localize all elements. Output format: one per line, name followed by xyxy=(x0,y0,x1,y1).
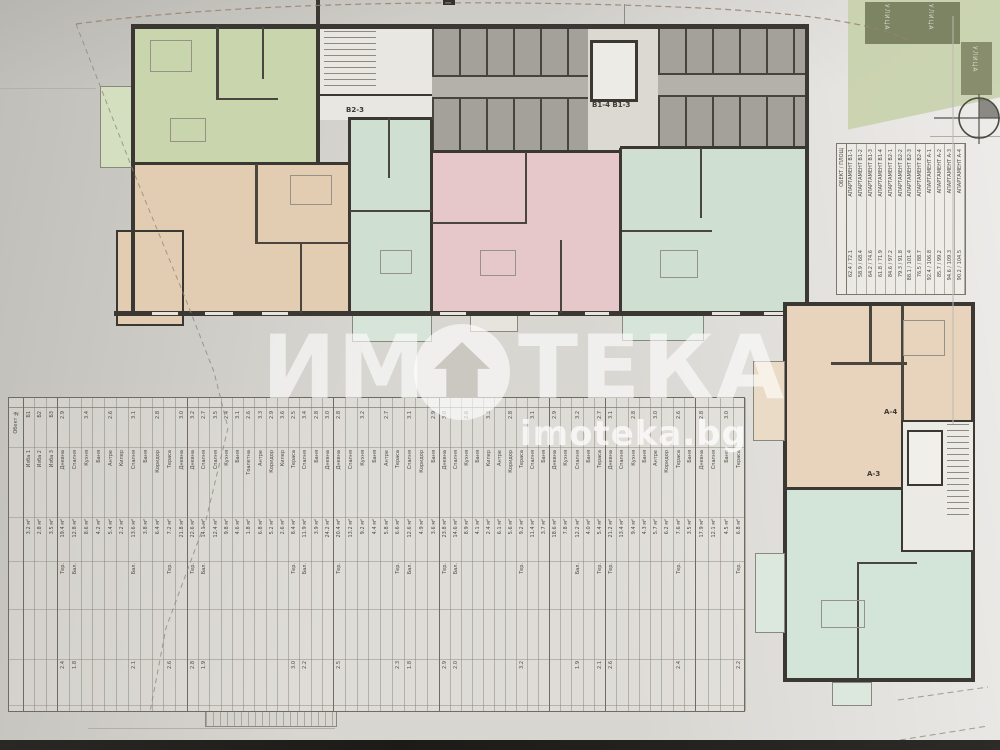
interior-wall xyxy=(869,306,872,364)
furniture xyxy=(170,118,206,142)
street-label: УЛИЦА xyxy=(927,4,934,30)
table-column: 3.5Спалня12.4 м² xyxy=(210,398,221,711)
table-cell-text: 13.4 м² xyxy=(619,519,625,538)
unit-label-a4: А-4 xyxy=(884,408,897,416)
interior-wall xyxy=(560,240,562,313)
table-cell-text: Тер. xyxy=(736,563,742,574)
table-cell-text: Спалня xyxy=(213,450,219,469)
table-cell-text: Спалня xyxy=(131,450,137,469)
legend-column: АПАРТАМЕНТ А-192.4 / 106.8 xyxy=(926,144,936,294)
table-cell-text: 22.6 м² xyxy=(190,519,196,538)
table-cell-text: 3.8 м² xyxy=(143,519,149,534)
table-cell-text: Тер. xyxy=(291,563,297,574)
table-cell-text: Спалня xyxy=(72,450,78,469)
table-cell-text: 2.1 xyxy=(131,661,137,669)
table-cell-text: 2.1 xyxy=(597,661,603,669)
table-cell-text: 2.4 xyxy=(224,411,230,419)
table-cell-text: 3.5 м² xyxy=(49,519,55,534)
table-cell-text: 1.8 м² xyxy=(246,519,252,534)
legend-apartment-area: 76.5 / 88.7 xyxy=(917,250,923,277)
table-cell-text: 2.2 м² xyxy=(119,519,125,534)
table-cell-text: 6.6 м² xyxy=(395,519,401,534)
table-cell-text: 7.8 м² xyxy=(563,519,569,534)
elevator-shaft xyxy=(590,40,638,102)
table-cell-text: Кухня xyxy=(224,450,230,466)
table-cell-text: 12.1 м² xyxy=(711,519,717,538)
watermark-text-right: ТЕКА xyxy=(518,318,786,418)
window xyxy=(530,312,558,315)
interior-wall xyxy=(525,152,527,222)
table-column: Баня3.8 м² xyxy=(141,398,153,711)
table-cell-text: 5.6 м² xyxy=(508,519,514,534)
unit-label-b1-4-b1-3: В1-4 В1-3 xyxy=(592,101,630,109)
table-cell-text: 5.7 м² xyxy=(653,519,659,534)
table-cell-text: 20.4 м² xyxy=(336,519,342,538)
watermark-house-logo xyxy=(414,324,510,420)
wall-mintmid-top xyxy=(348,117,432,120)
window xyxy=(712,312,740,315)
table-cell-text: 3.5 xyxy=(213,411,219,419)
dimension-line xyxy=(624,4,625,24)
watermark-text-left: ИМ xyxy=(262,318,427,418)
unit-label-b2-3: В2-3 xyxy=(346,106,364,114)
table-cell-text: Спалня xyxy=(201,450,207,469)
table-cell-text: 1.8 xyxy=(72,661,78,669)
legend-column: АПАРТАМЕНТ В1-162.4 / 72.1 xyxy=(847,144,857,294)
table-cell-text: 2.9 xyxy=(60,411,66,419)
table-cell-text: 3.0 xyxy=(179,411,185,419)
window xyxy=(152,312,178,315)
table-column: 3.1Спалня13.6 м²Бал.2.1 xyxy=(129,398,141,711)
top-tick-mark xyxy=(443,0,455,5)
table-cell-text: 2.4 xyxy=(60,661,66,669)
table-cell-text: Тер. xyxy=(676,563,682,574)
legend-apartment-name: АПАРТАМЕНТ А-3 xyxy=(947,149,953,193)
table-cell-text: 5.4 м² xyxy=(597,519,603,534)
table-cell-text: 2.8 xyxy=(190,661,196,669)
legend-column: АПАРТАМЕНТ А-490.2 / 104.5 xyxy=(955,144,965,294)
table-cell-text: 4.3 м² xyxy=(642,519,648,534)
furniture xyxy=(290,175,332,205)
table-cell-text: Тер. xyxy=(597,563,603,574)
table-cell-text: 4.2 м² xyxy=(96,519,102,534)
interior-wall xyxy=(622,230,712,232)
storage-cells-row xyxy=(658,95,807,146)
legend-apartment-area: 79.3 / 91.8 xyxy=(898,250,904,277)
watermark-url: imoteka.bg xyxy=(520,414,747,454)
wall-tan-mintmid xyxy=(348,117,351,314)
table-cell-text: 6.4 м² xyxy=(155,519,161,534)
table-cell-text: Б1 xyxy=(26,411,32,418)
house-icon xyxy=(434,342,490,398)
storage-cells-row xyxy=(432,97,588,150)
legend-column: АПАРТАМЕНТ А-394.6 / 109.3 xyxy=(945,144,955,294)
table-cell-text: 2.6 м² xyxy=(280,519,286,534)
table-cell-text: 2.8 м² xyxy=(37,519,43,534)
legend-column: АПАРТАМЕНТ В2-184.6 / 97.2 xyxy=(886,144,896,294)
table-cell-text: Баня xyxy=(143,450,149,463)
table-cell-text: Тоалетна xyxy=(246,450,252,475)
faint-line xyxy=(88,728,335,729)
table-cell-text: 6.8 м² xyxy=(258,519,264,534)
table-cell-text: Тер. xyxy=(608,563,614,574)
table-cell-text: 3.0 xyxy=(291,661,297,669)
table-column: 2.4Кухня9.8 м² xyxy=(222,398,233,711)
legend-column: АПАРТАМЕНТ В1-461.8 / 71.9 xyxy=(876,144,886,294)
table-cell-text: Бал. xyxy=(201,563,207,574)
window xyxy=(205,312,233,315)
table-cell-text: 4.4 м² xyxy=(372,519,378,534)
legend-apartment-name: АПАРТАМЕНТ В1-2 xyxy=(858,149,864,197)
interior-wall xyxy=(255,164,258,244)
unit-label-a3: А-3 xyxy=(867,470,880,478)
table-cell-text: Изба 2 xyxy=(37,450,43,467)
window xyxy=(440,312,466,315)
table-column: Б2Изба 22.8 м² xyxy=(35,398,46,711)
legend-apartment-area: 84.6 / 97.2 xyxy=(888,250,894,277)
table-cell-text: 2.0 xyxy=(453,661,459,669)
table-cell-text: 13.2 м² xyxy=(348,519,354,538)
compass-icon xyxy=(934,92,1000,146)
table-cell-text: 19.4 м² xyxy=(60,519,66,538)
interior-wall xyxy=(255,242,350,244)
table-cell-text: Кухня xyxy=(84,450,90,466)
table-cell-text: Дневна xyxy=(179,450,185,470)
table-cell-text: 5.8 м² xyxy=(384,519,390,534)
table-cell-text: 2.7 xyxy=(201,411,207,419)
table-cell-text: 1.9 xyxy=(201,661,207,669)
table-cell-text: Б3 xyxy=(49,411,55,418)
furniture xyxy=(380,250,412,274)
table-cell-text: Баня xyxy=(96,450,102,463)
table-cell-text: 2.4 xyxy=(676,661,682,669)
table-cell-text: 8.6 м² xyxy=(84,519,90,534)
table-cell-text: 17.9 м² xyxy=(699,519,705,538)
table-cell-text: 7.2 м² xyxy=(167,519,173,534)
legend-apartment-area: 88.1 / 101.4 xyxy=(907,250,913,280)
table-cell-text: 9.8 м² xyxy=(224,519,230,534)
legend-apartment-name: АПАРТАМЕНТ В2-2 xyxy=(898,149,904,197)
table-cell-text: 2.5 xyxy=(336,661,342,669)
legend-apartment-area: 58.9 / 68.4 xyxy=(858,250,864,277)
interior-wall xyxy=(700,148,702,218)
table-cell-text: 14.6 м² xyxy=(453,519,459,538)
table-cell-text: 11.9 м² xyxy=(302,519,308,538)
street-block-1: УЛИЦА УЛИЦА xyxy=(865,2,960,44)
interior-wall xyxy=(857,562,917,564)
balcony-a3 xyxy=(755,553,785,633)
table-column: 2.6Тоалетна1.8 м² xyxy=(244,398,255,711)
table-cell-text: 1.9 xyxy=(575,661,581,669)
outer-wall-top xyxy=(131,24,809,29)
table-cell-text: Бал. xyxy=(453,563,459,574)
table-cell-text: 3.7 м² xyxy=(541,519,547,534)
table-cell-text: Тер. xyxy=(336,563,342,574)
storage-block-a xyxy=(432,25,588,150)
table-cell-text: 4.6 м² xyxy=(235,519,241,534)
furniture xyxy=(150,40,192,72)
table-cell-text: 12.2 м² xyxy=(575,519,581,538)
legend-column: АПАРТАМЕНТ В2-388.1 / 101.4 xyxy=(906,144,916,294)
table-cell-text: Бал. xyxy=(302,563,308,574)
table-cell-text: 7.6 м² xyxy=(676,519,682,534)
table-cell-text: Тер. xyxy=(167,563,173,574)
table-cell-text: 12.6 м² xyxy=(407,519,413,538)
table-cell-text: 8.4 м² xyxy=(291,519,297,534)
table-cell-text: 2.6 xyxy=(167,661,173,669)
furniture xyxy=(660,250,698,278)
table-cell-text: 9.4 м² xyxy=(631,519,637,534)
table-cell-text: 3.2 xyxy=(519,661,525,669)
table-cell-text: 12.4 м² xyxy=(213,519,219,538)
area-table-extension xyxy=(205,712,337,727)
table-cell-text: 5.2 м² xyxy=(269,519,275,534)
table-cell-text: Б2 xyxy=(37,411,43,418)
legend-apartment-name: АПАРТАМЕНТ А-4 xyxy=(957,149,963,193)
stair-treads xyxy=(324,31,376,91)
table-cell-text: Бал. xyxy=(407,563,413,574)
table-cell-text: Бал. xyxy=(575,563,581,574)
table-cell-text: Дневна xyxy=(60,450,66,470)
table-cell-text: 2.3 xyxy=(395,661,401,669)
table-cell-text: 24.2 м² xyxy=(325,519,331,538)
table-cell-text: Дневна xyxy=(190,450,196,470)
table-cell-text: 9.2 м² xyxy=(519,519,525,534)
table-cell-text: 21.2 м² xyxy=(608,519,614,538)
table-cell-text: 3.1 xyxy=(235,411,241,419)
table-column: 2.6Антре5.4 м² xyxy=(105,398,117,711)
table-cell-text: 4.9 м² xyxy=(419,519,425,534)
table-cell-text: Изба 1 xyxy=(26,450,32,467)
table-cell-text: 2.6 xyxy=(608,661,614,669)
legend-column: АПАРТАМЕНТ В2-279.3 / 91.8 xyxy=(896,144,906,294)
elevator-shaft-a xyxy=(907,430,943,486)
table-cell-text: 6.1 м² xyxy=(497,519,503,534)
interior-wall xyxy=(432,222,527,224)
street-label: УЛИЦА xyxy=(883,4,890,30)
furniture xyxy=(480,250,516,276)
table-column: 2.7Спалня14.1 м²Бал.1.9 xyxy=(199,398,210,711)
legend-column: АПАРТАМЕНТ А-285.7 / 99.2 xyxy=(935,144,945,294)
window xyxy=(585,312,609,315)
table-cell-text: 3.6 м² xyxy=(431,519,437,534)
outer-wall-right xyxy=(805,24,809,316)
furniture xyxy=(903,320,945,356)
table-cell-text: 4.0 м² xyxy=(586,519,592,534)
legend-column: АПАРТАМЕНТ В1-364.2 / 74.6 xyxy=(867,144,877,294)
terrace-a3 xyxy=(832,682,872,706)
table-group: Б1Изба 13.2 м²Б2Изба 22.8 м²Б3Изба 33.5 … xyxy=(23,398,58,711)
table-cell-text: Тер. xyxy=(395,563,401,574)
table-group: 2.9Дневна19.4 м²Тер.2.4Спалня12.8 м²Бал.… xyxy=(57,398,188,711)
legend-apartment-area: 94.6 / 109.3 xyxy=(947,250,953,280)
table-cell-text: Тераса xyxy=(167,450,173,468)
balcony-green xyxy=(100,86,135,168)
table-cell-text: 18.6 м² xyxy=(552,519,558,538)
table-cell-text: 6.2 м² xyxy=(664,519,670,534)
table-cell-text: 2.2 xyxy=(736,661,742,669)
table-cell-text: 21.8 м² xyxy=(179,519,185,538)
legend-side-label: ОБЕКТ / ПЛОЩ xyxy=(839,148,845,187)
table-cell-text: 14.1 м² xyxy=(201,519,207,538)
table-column: Спалня12.8 м²Бал.1.8 xyxy=(70,398,82,711)
table-cell-text: Баня xyxy=(235,450,241,463)
table-cell-text: 3.1 xyxy=(131,411,137,419)
storage-cells-row xyxy=(432,25,588,77)
table-cell-text: 3.2 м² xyxy=(26,519,32,534)
legend-apartment-name: АПАРТАМЕНТ В2-1 xyxy=(888,149,894,197)
legend-apartment-area: 90.2 / 104.5 xyxy=(957,250,963,280)
legend-apartment-name: АПАРТАМЕНТ В1-3 xyxy=(868,149,874,197)
table-cell-text: Тер. xyxy=(190,563,196,574)
legend-apartment-name: АПАРТАМЕНТ В1-1 xyxy=(848,149,854,197)
table-cell-text: 5.4 м² xyxy=(108,519,114,534)
table-column: 2.9Дневна19.4 м²Тер.2.4 xyxy=(58,398,70,711)
table-column: Килер2.2 м² xyxy=(117,398,129,711)
storage-block-b xyxy=(658,25,807,146)
table-cell-text: 9.2 м² xyxy=(360,519,366,534)
table-cell-text: 11.4 м² xyxy=(530,519,536,538)
wall-mintright-top xyxy=(620,146,807,149)
table-cell-text: 3.5 м² xyxy=(687,519,693,534)
table-cell-text: 2.4 м² xyxy=(486,519,492,534)
table-column: 3.2Дневна22.6 м²Тер.2.8 xyxy=(188,398,199,711)
table-column: 3.4Кухня8.6 м² xyxy=(82,398,94,711)
table-cell-text: 2.6 xyxy=(108,411,114,419)
legend-apartment-name: АПАРТАМЕНТ В1-4 xyxy=(878,149,884,197)
interior-wall xyxy=(216,98,278,100)
table-cell-text: 2.8 xyxy=(155,411,161,419)
table-cell-text: 6.8 м² xyxy=(736,519,742,534)
table-cell-text: 23.8 м² xyxy=(442,519,448,538)
interior-wall xyxy=(300,244,302,313)
table-cell-text: 2.6 xyxy=(246,411,252,419)
storage-corridor xyxy=(432,77,588,97)
table-cell-text: Килер xyxy=(119,450,125,466)
legend-apartment-area: 92.4 / 106.8 xyxy=(927,250,933,280)
table-cell-text: 2.9 xyxy=(442,661,448,669)
table-cell-text: Тер. xyxy=(60,563,66,574)
table-cell-text: 8.9 м² xyxy=(464,519,470,534)
table-cell-text: Бал. xyxy=(72,563,78,574)
legend-side-strip: ОБЕКТ / ПЛОЩ xyxy=(837,144,847,294)
table-column: 2.8Коридор6.4 м² xyxy=(153,398,165,711)
table-cell-text: 3.2 xyxy=(190,411,196,419)
legend-apartment-name: АПАРТАМЕНТ В2-4 xyxy=(917,149,923,197)
stair-core xyxy=(901,420,975,552)
interior-wall xyxy=(388,118,390,178)
watermark: ИМ ТЕКА imoteka.bg xyxy=(262,318,732,458)
table-cell-text: Бал. xyxy=(131,563,137,574)
table-cell-text: Антре xyxy=(108,450,114,466)
wall-extension-line xyxy=(316,0,320,27)
legend-apartment-name: АПАРТАМЕНТ А-2 xyxy=(937,149,943,193)
table-cell-text: Тер. xyxy=(442,563,448,574)
photo-bottom-edge xyxy=(0,740,1000,750)
street-label: УЛИЦА xyxy=(971,46,978,72)
table-cell-text: 4.1 м² xyxy=(475,519,481,534)
legend-column: АПАРТАМЕНТ В1-258.9 / 68.4 xyxy=(857,144,867,294)
table-column: Тераса7.2 м²Тер.2.6 xyxy=(164,398,176,711)
table-cell-text: 2.2 xyxy=(302,661,308,669)
table-cell-text: 12.8 м² xyxy=(72,519,78,538)
legend-apartment-name: АПАРТАМЕНТ В2-3 xyxy=(907,149,913,197)
legend-apartment-area: 64.2 / 74.6 xyxy=(868,250,874,277)
storage-cells-row xyxy=(658,25,807,75)
legend-column: АПАРТАМЕНТ В2-476.5 / 88.7 xyxy=(916,144,926,294)
window xyxy=(262,312,288,315)
interior-wall xyxy=(350,210,432,212)
interior-wall xyxy=(216,27,219,99)
street-block-2: УЛИЦА xyxy=(961,42,992,95)
table-cell-text: Изба 3 xyxy=(49,450,55,467)
floor-plan-photo: УЛИЦА УЛИЦА УЛИЦА xyxy=(0,0,1000,750)
table-column: Б1Изба 13.2 м² xyxy=(24,398,35,711)
legend-table: ОБЕКТ / ПЛОЩ АПАРТАМЕНТ В1-162.4 / 72.1А… xyxy=(836,143,966,295)
table-column: 3.1Баня4.6 м² xyxy=(233,398,244,711)
table-cell-text: Коридор xyxy=(155,450,161,473)
legend-apartment-name: АПАРТАМЕНТ А-1 xyxy=(927,149,933,193)
outer-wall-left xyxy=(131,24,135,315)
legend-apartment-area: 85.7 / 99.2 xyxy=(937,250,943,277)
table-cell-text: 4.5 м² xyxy=(724,519,730,534)
table-cell-text: 3.4 xyxy=(84,411,90,419)
apartment-mint-mid xyxy=(350,118,432,313)
table-column: Баня4.2 м² xyxy=(93,398,105,711)
table-cell-text: 1.8 xyxy=(407,661,413,669)
wall-stair-bottom xyxy=(318,94,432,96)
sheet-edge-line xyxy=(0,88,96,89)
storage-corridor xyxy=(658,75,807,95)
legend-apartment-area: 61.8 / 71.9 xyxy=(878,250,884,277)
furniture xyxy=(821,600,865,628)
stair-treads-a xyxy=(947,424,969,516)
legend-apartment-area: 62.4 / 72.1 xyxy=(848,250,854,277)
interior-wall xyxy=(262,27,264,79)
table-cell-text: Тер. xyxy=(519,563,525,574)
plan-a-outline xyxy=(783,302,975,682)
table-cell-text: 13.6 м² xyxy=(131,519,137,538)
table-cell-text: 3.9 м² xyxy=(314,519,320,534)
interior-wall xyxy=(831,362,907,365)
